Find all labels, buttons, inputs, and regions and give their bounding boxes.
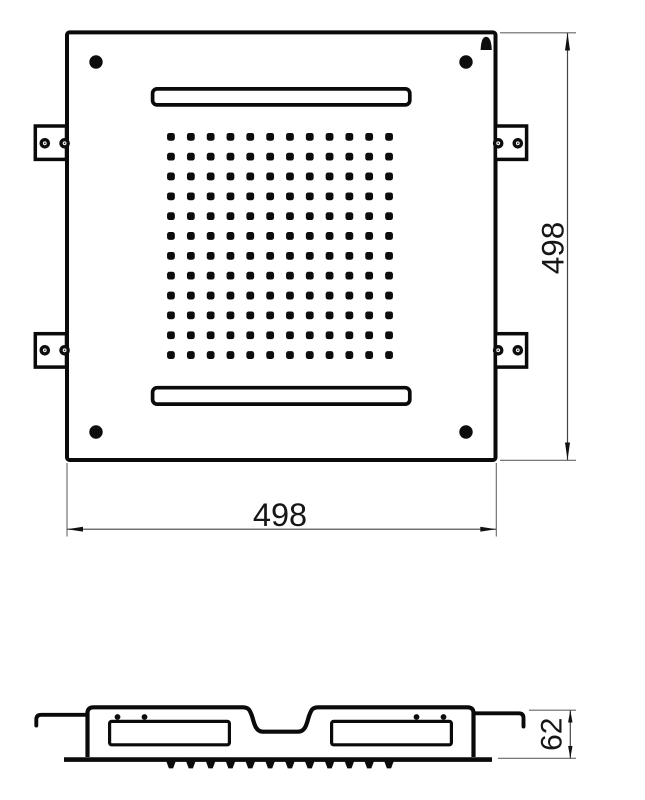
svg-text:498: 498 (535, 222, 571, 275)
svg-text:498: 498 (253, 497, 307, 533)
svg-text:62: 62 (536, 718, 569, 751)
